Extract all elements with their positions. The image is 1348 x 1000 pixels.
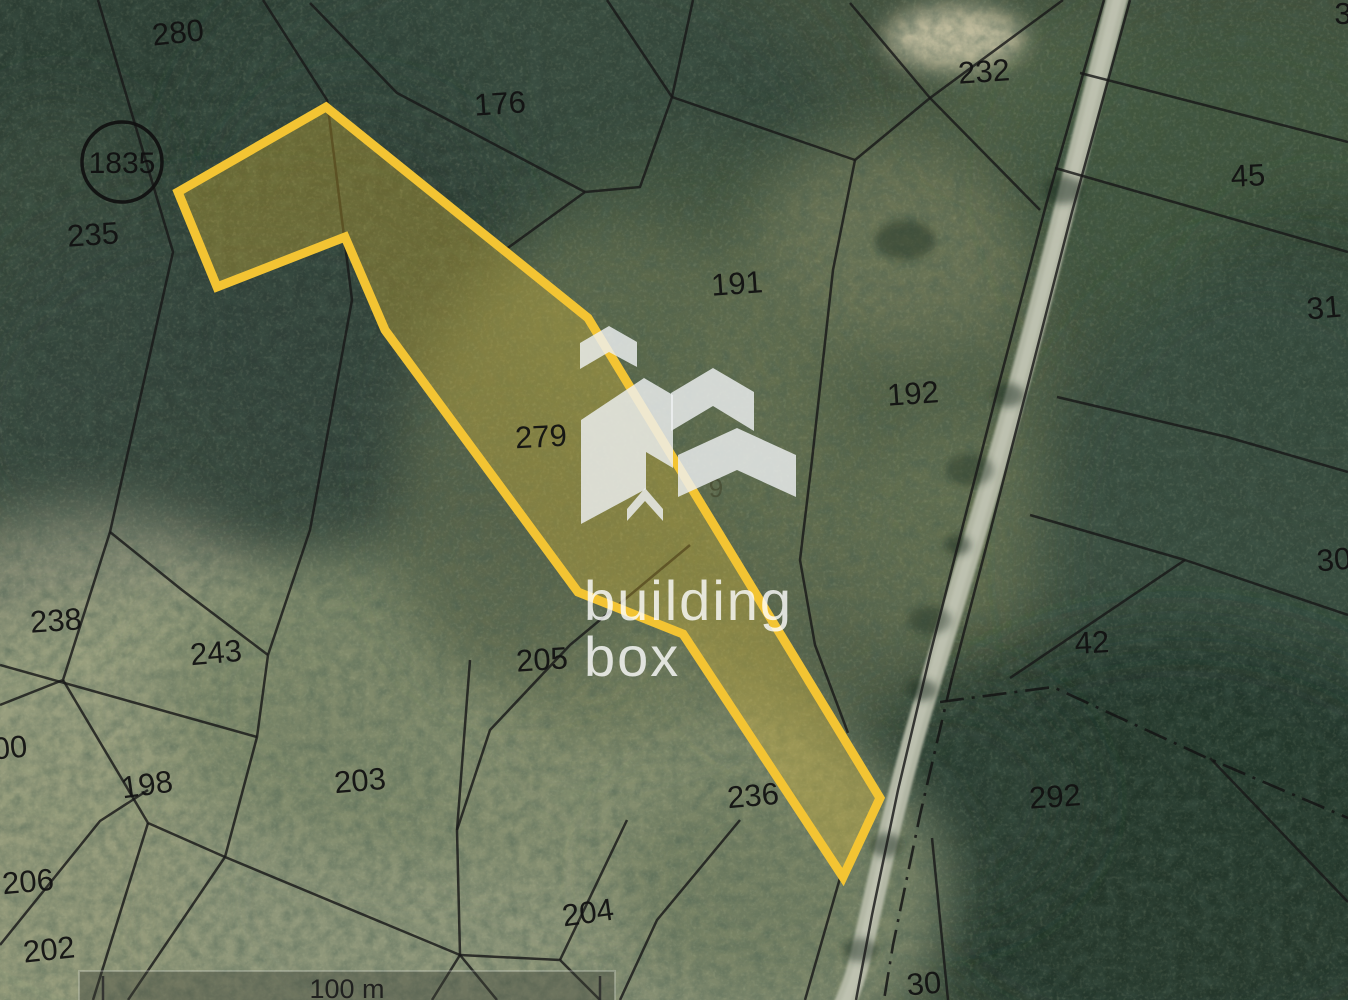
watermark-text-line2: box [584, 625, 680, 688]
parcel-label-3: 3 [1334, 0, 1348, 31]
parcel-label-238: 238 [29, 601, 83, 640]
parcel-label-235: 235 [66, 215, 120, 254]
parcel-label-236: 236 [726, 776, 781, 815]
parcel-label-206: 206 [1, 862, 56, 901]
map-viewport[interactable]: 2803176232235451911923127930422382432050… [0, 0, 1348, 1000]
parcel-label-176: 176 [473, 84, 527, 123]
parcel-1835-label: 1835 [89, 147, 156, 180]
parcel-label-45: 45 [1230, 157, 1266, 194]
scale-bar-label: 100 m [309, 974, 384, 1000]
parcel-label-30: 30 [1315, 541, 1348, 579]
parcel-label-292: 292 [1028, 777, 1082, 816]
scale-bar: 100 m [79, 971, 615, 1000]
parcel-label-243: 243 [189, 633, 244, 672]
parcel-label-202: 202 [21, 929, 76, 969]
parcel-label-192: 192 [886, 374, 940, 413]
parcel-label-198: 198 [119, 764, 175, 806]
parcel-label-204: 204 [560, 892, 616, 934]
parcel-label-42: 42 [1074, 624, 1110, 661]
parcel-label-203: 203 [333, 761, 388, 800]
parcel-label-00: 00 [0, 729, 29, 767]
parcel-label-30: 30 [905, 965, 942, 1000]
parcel-label-31: 31 [1305, 289, 1342, 327]
parcel-label-280: 280 [150, 12, 205, 52]
parcel-label-191: 191 [710, 264, 764, 303]
parcel-label-279: 279 [514, 418, 567, 456]
watermark-text-line1: building [584, 569, 793, 632]
map-canvas[interactable]: 2803176232235451911923127930422382432050… [0, 0, 1348, 1000]
parcel-label-205: 205 [515, 640, 569, 679]
parcel-label-232: 232 [957, 52, 1011, 91]
